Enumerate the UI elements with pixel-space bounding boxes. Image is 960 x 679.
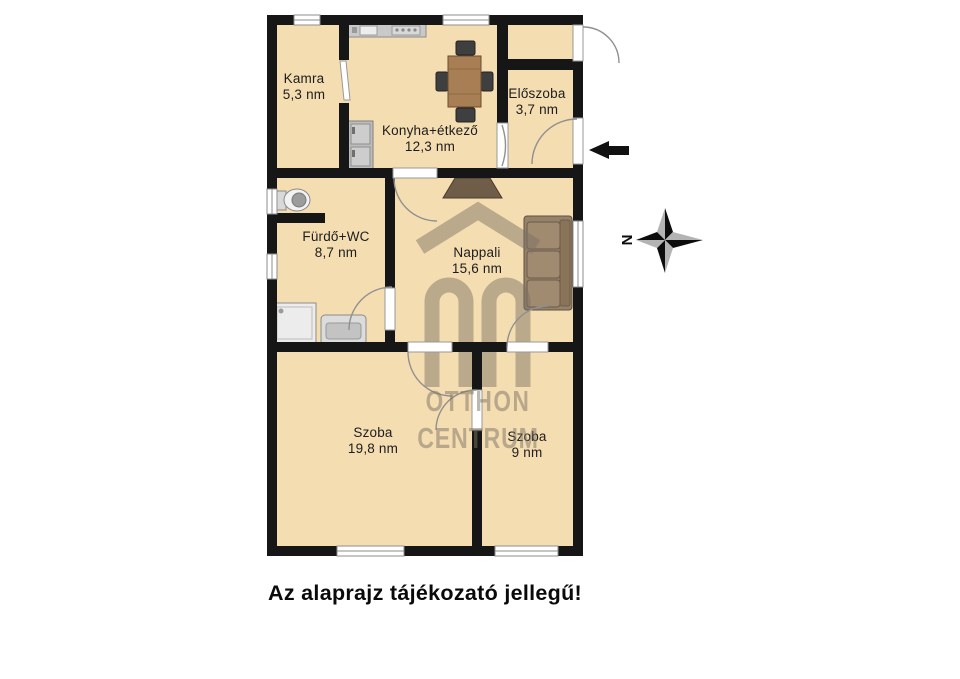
room-name: Kamra <box>224 71 384 87</box>
entrance-arrow-icon <box>589 141 629 159</box>
watermark-brand-line2: CENTRUM <box>358 423 598 456</box>
wall <box>548 342 573 352</box>
room-name: Konyha+étkező <box>350 123 510 139</box>
sink <box>360 26 377 35</box>
room-area: 15,6 nm <box>397 261 557 277</box>
room-area: 3,7 nm <box>457 102 617 118</box>
room-label-nappali: Nappali 15,6 nm <box>397 245 557 276</box>
compass-rose-icon: N <box>619 208 703 273</box>
toilet <box>277 189 310 211</box>
wall <box>508 59 573 70</box>
wall <box>267 168 393 178</box>
door <box>408 342 452 352</box>
compass-north-label: N <box>619 235 636 246</box>
room-label-eloszoba: Előszoba 3,7 nm <box>457 86 617 117</box>
disclaimer-caption: Az alaprajz tájékozató jellegű! <box>125 581 725 606</box>
wall <box>452 342 507 352</box>
room-label-furdo: Fürdő+WC 8,7 nm <box>256 229 416 260</box>
wall <box>472 352 482 390</box>
room-area: 5,3 nm <box>224 87 384 103</box>
door-swing-arc <box>583 27 619 63</box>
door <box>385 288 395 330</box>
door <box>393 168 437 178</box>
wall <box>339 25 349 60</box>
room-label-kamra: Kamra 5,3 nm <box>224 71 384 102</box>
wall <box>339 103 349 168</box>
room-name: Előszoba <box>457 86 617 102</box>
exterior-door <box>573 25 583 61</box>
entrance-door <box>573 118 583 164</box>
watermark-brand-line1: OTTHON <box>361 386 595 419</box>
floor-plan-page: N Kamra 5,3 nm Konyha+étkező 12,3 nm Elő… <box>0 0 960 679</box>
shower-tray <box>273 303 316 343</box>
chair <box>456 41 475 55</box>
room-area: 8,7 nm <box>256 245 416 261</box>
room-area: 12,3 nm <box>350 139 510 155</box>
kitchen-counter <box>348 24 426 37</box>
counter-handle <box>352 27 357 33</box>
wall <box>385 330 395 352</box>
chair <box>436 72 448 91</box>
washing-machine <box>321 315 366 345</box>
wall <box>437 168 573 178</box>
room-label-konyha: Konyha+étkező 12,3 nm <box>350 123 510 154</box>
room-name: Fürdő+WC <box>256 229 416 245</box>
wc-partition-wall <box>277 213 325 223</box>
room-name: Nappali <box>397 245 557 261</box>
door <box>507 342 548 352</box>
